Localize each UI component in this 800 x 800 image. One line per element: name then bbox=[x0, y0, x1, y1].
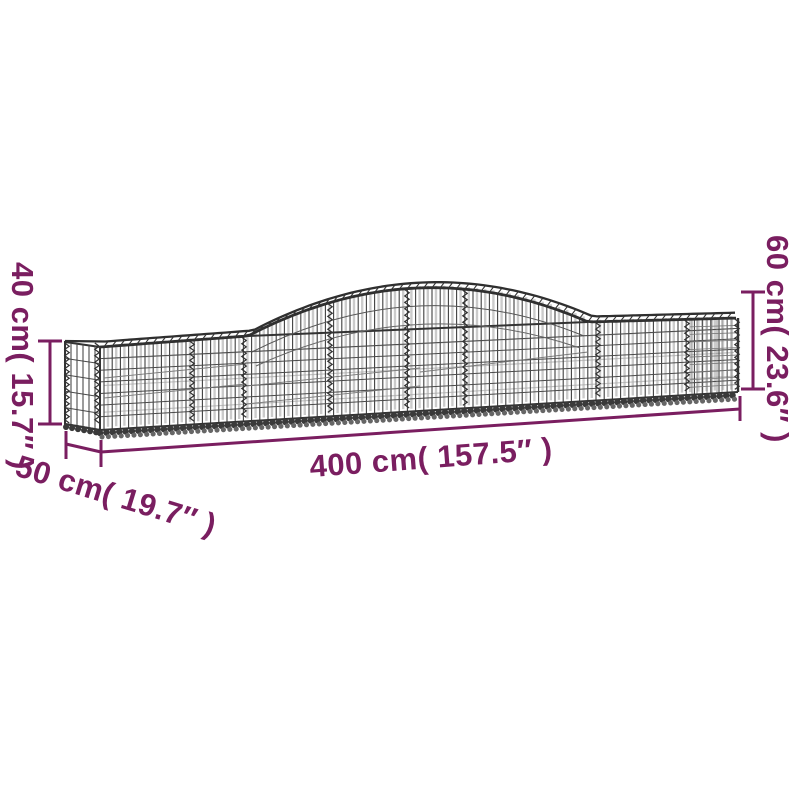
product-dimension-diagram: 40 cm( 15.7″ ) 60 cm( 23.6″ ) 400 cm( 15… bbox=[0, 0, 800, 800]
gabion-basket-drawing bbox=[0, 0, 800, 800]
dimension-label-height-60cm: 60 cm( 23.6″ ) bbox=[759, 235, 795, 443]
dimension-label-height-40cm: 40 cm( 15.7″ ) bbox=[4, 262, 40, 470]
